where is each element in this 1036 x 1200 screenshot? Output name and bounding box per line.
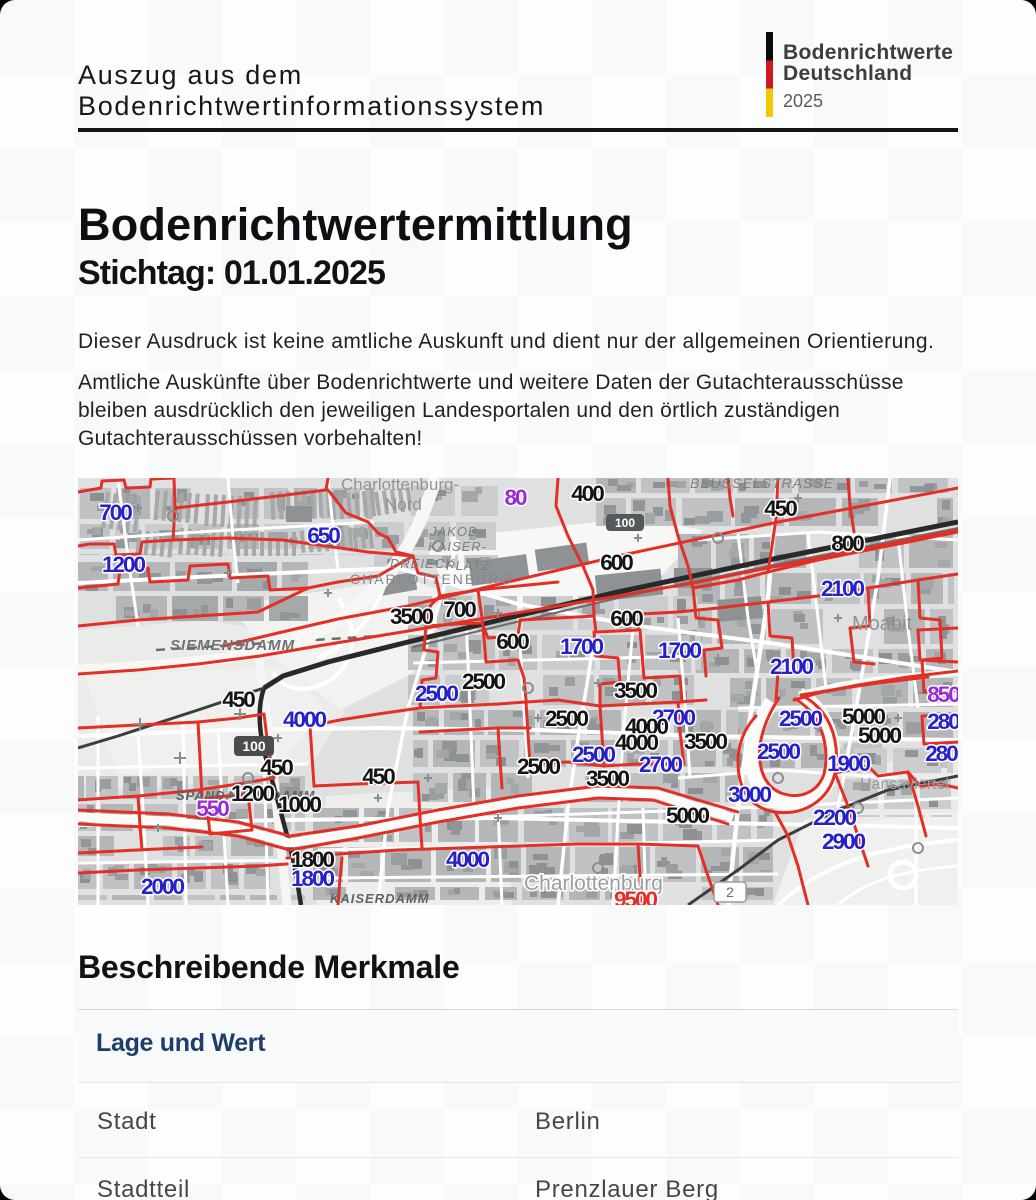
svg-text:450: 450 bbox=[222, 687, 255, 712]
svg-text:Nord: Nord bbox=[385, 495, 422, 514]
svg-text:2000: 2000 bbox=[141, 874, 185, 899]
svg-text:2500: 2500 bbox=[779, 706, 823, 731]
svg-text:3500: 3500 bbox=[684, 729, 728, 754]
svg-text:1700: 1700 bbox=[560, 634, 604, 659]
svg-text:800: 800 bbox=[831, 531, 864, 556]
svg-text:280: 280 bbox=[925, 741, 958, 766]
svg-text:450: 450 bbox=[362, 764, 395, 789]
svg-text:BEUSSELSTRASSE: BEUSSELSTRASSE bbox=[690, 478, 834, 491]
svg-text:450: 450 bbox=[764, 496, 797, 521]
svg-text:600: 600 bbox=[610, 606, 643, 631]
svg-text:5000: 5000 bbox=[858, 723, 902, 748]
svg-text:600: 600 bbox=[496, 629, 529, 654]
svg-text:2: 2 bbox=[726, 884, 734, 900]
svg-text:100: 100 bbox=[615, 516, 635, 530]
svg-text:Charlottenburg-: Charlottenburg- bbox=[341, 478, 459, 494]
svg-text:2500: 2500 bbox=[545, 706, 589, 731]
svg-text:2200: 2200 bbox=[813, 805, 857, 830]
svg-text:Hansaviertel: Hansaviertel bbox=[860, 776, 949, 793]
svg-text:2900: 2900 bbox=[822, 829, 866, 854]
svg-text:700: 700 bbox=[99, 500, 132, 525]
svg-text:2500: 2500 bbox=[572, 742, 616, 767]
svg-text:450: 450 bbox=[260, 755, 293, 780]
svg-text:KAISER-: KAISER- bbox=[428, 539, 487, 554]
svg-text:80: 80 bbox=[504, 485, 527, 510]
svg-text:2500: 2500 bbox=[415, 681, 459, 706]
svg-text:JAKOB-: JAKOB- bbox=[429, 524, 483, 539]
svg-text:2500: 2500 bbox=[757, 739, 801, 764]
svg-text:280: 280 bbox=[927, 709, 958, 734]
svg-text:100: 100 bbox=[242, 738, 266, 754]
svg-text:3500: 3500 bbox=[390, 604, 434, 629]
svg-text:4000: 4000 bbox=[446, 847, 490, 872]
svg-text:1700: 1700 bbox=[658, 638, 702, 663]
svg-text:2100: 2100 bbox=[821, 576, 865, 601]
svg-text:2100: 2100 bbox=[770, 654, 814, 679]
svg-text:700: 700 bbox=[443, 597, 476, 622]
svg-text:400: 400 bbox=[571, 481, 604, 506]
svg-text:5000: 5000 bbox=[666, 803, 710, 828]
svg-text:1900: 1900 bbox=[827, 751, 871, 776]
svg-text:KAISERDAMM: KAISERDAMM bbox=[330, 891, 430, 905]
svg-text:600: 600 bbox=[600, 550, 633, 575]
svg-text:SIEMENSDAMM: SIEMENSDAMM bbox=[170, 637, 295, 654]
svg-text:2700: 2700 bbox=[639, 752, 683, 777]
svg-text:3500: 3500 bbox=[614, 678, 658, 703]
svg-text:2500: 2500 bbox=[462, 669, 506, 694]
svg-text:1200: 1200 bbox=[231, 781, 275, 806]
svg-text:2500: 2500 bbox=[517, 754, 561, 779]
svg-text:650: 650 bbox=[307, 523, 340, 548]
svg-text:3000: 3000 bbox=[728, 782, 772, 807]
svg-text:550: 550 bbox=[196, 796, 229, 821]
svg-text:1000: 1000 bbox=[278, 792, 322, 817]
svg-text:3500: 3500 bbox=[586, 766, 630, 791]
svg-text:9500: 9500 bbox=[614, 887, 658, 905]
svg-text:4000: 4000 bbox=[283, 707, 327, 732]
svg-text:1800: 1800 bbox=[291, 866, 335, 891]
svg-text:Moabit: Moabit bbox=[852, 613, 912, 635]
svg-text:850: 850 bbox=[927, 682, 958, 707]
svg-text:CHARLOTTENBURG: CHARLOTTENBURG bbox=[350, 571, 513, 587]
svg-text:1200: 1200 bbox=[102, 552, 146, 577]
